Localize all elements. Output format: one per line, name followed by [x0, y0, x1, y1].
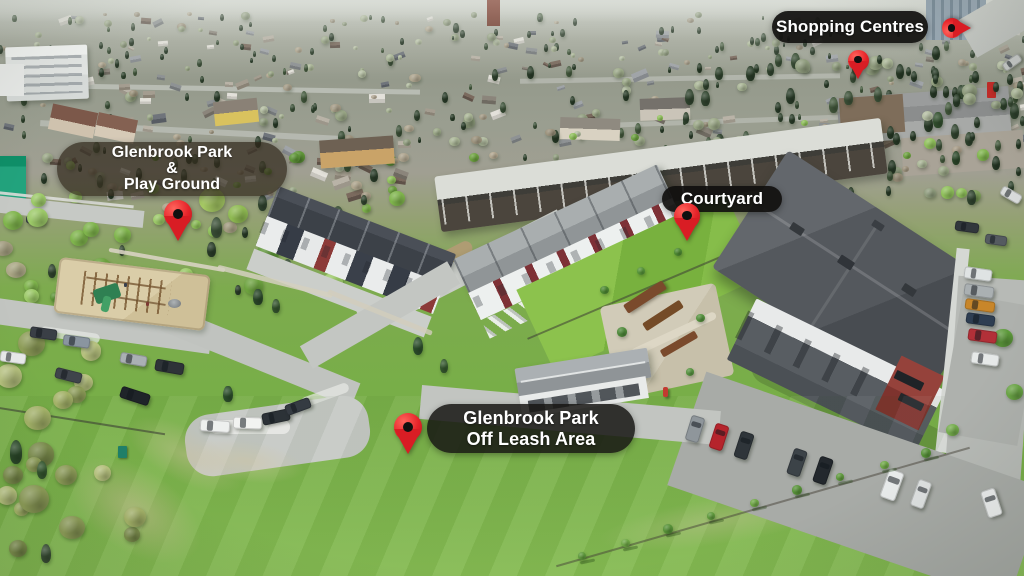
pin-icon-off-leash-part [394, 429, 422, 454]
tree [880, 461, 889, 469]
tree [663, 524, 673, 533]
pin-icon-playground-part [164, 216, 192, 241]
aerial-photo: Shopping Centres Glenbrook Park & Play G… [0, 0, 1024, 576]
pin-icon-playground [164, 200, 192, 241]
pin-icon-courtyard-part [674, 218, 700, 241]
pin-icon-shopping-centres-road-part [953, 18, 971, 38]
label-off-leash-line1: Glenbrook Park [463, 408, 598, 429]
label-off-leash-area: Glenbrook Park Off Leash Area [427, 404, 635, 453]
label-park-line1: Glenbrook Park [112, 145, 233, 161]
pin-icon-playground-part [173, 209, 183, 219]
label-off-leash-line2: Off Leash Area [467, 429, 596, 450]
tree [621, 539, 630, 547]
pin-icon-off-leash-part [403, 422, 413, 432]
pin-icon-shopping-centres-area-part [848, 61, 868, 79]
label-park-line2: & [166, 161, 178, 177]
tree [750, 499, 759, 507]
aerial-scene [0, 0, 1024, 576]
label-shopping-centres: Shopping Centres [772, 11, 928, 43]
photo-vignette [0, 0, 1024, 576]
tree [792, 485, 802, 494]
tree [707, 512, 715, 519]
pin-icon-courtyard [674, 203, 700, 241]
label-glenbrook-park-playground: Glenbrook Park & Play Ground [57, 142, 287, 196]
pin-icon-off-leash [394, 413, 422, 454]
label-shopping-centres-text: Shopping Centres [776, 18, 924, 36]
pin-icon-shopping-centres-area [848, 50, 869, 80]
label-park-line3: Play Ground [124, 177, 220, 193]
tree [836, 473, 844, 480]
pin-icon-courtyard-part [682, 211, 691, 220]
pin-icon-shopping-centres-road [942, 18, 971, 38]
tree [578, 552, 586, 559]
tree [921, 448, 931, 457]
pin-icon-shopping-centres-road-part [948, 24, 955, 31]
pin-icon-shopping-centres-area-part [854, 56, 862, 64]
